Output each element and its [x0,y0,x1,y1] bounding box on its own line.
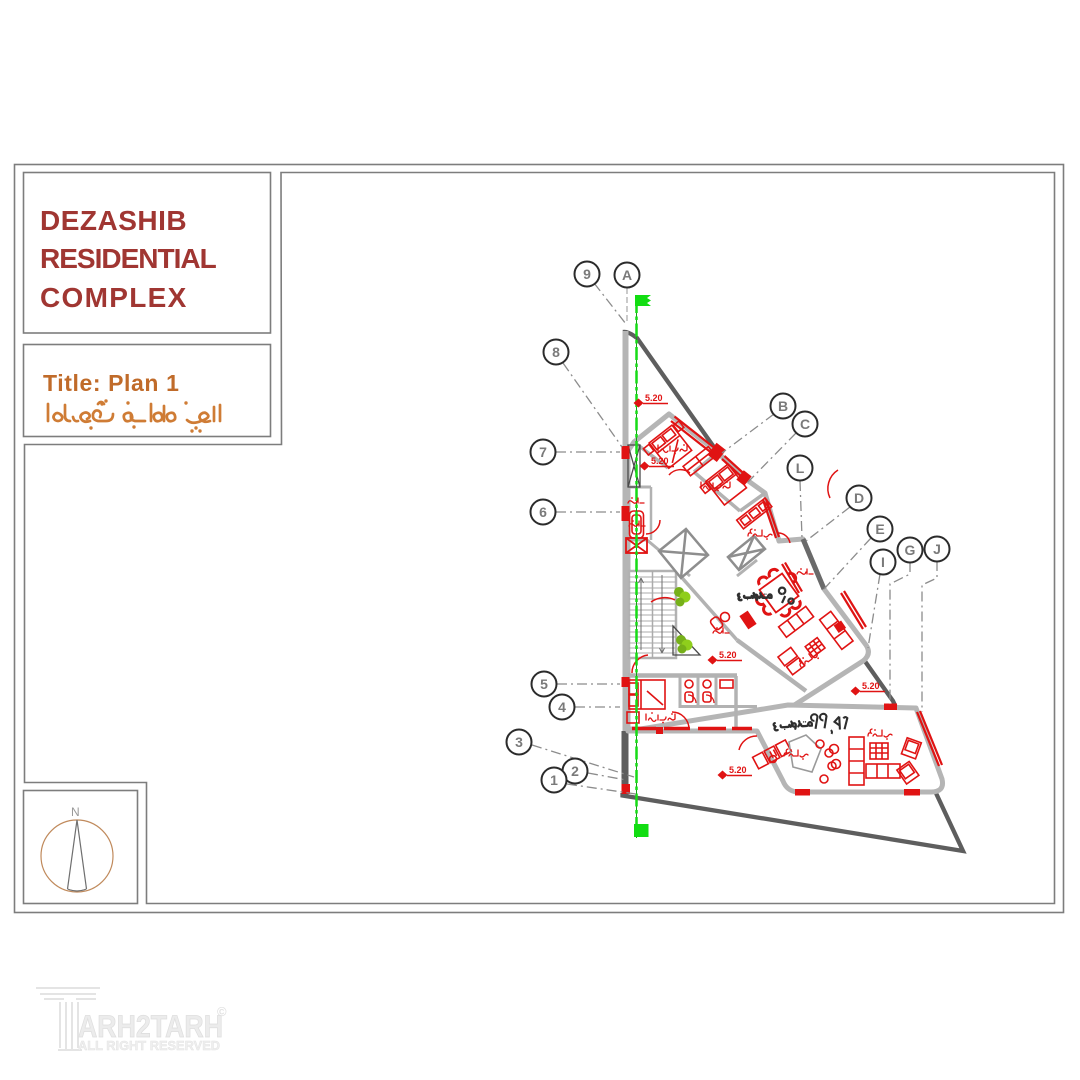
svg-text:G: G [905,542,916,558]
svg-text:ALL RIGHT RESERVED: ALL RIGHT RESERVED [78,1038,220,1053]
svg-text:L: L [796,460,805,476]
svg-text:RESIDENTIAL: RESIDENTIAL [40,243,217,274]
svg-text:3: 3 [515,734,523,750]
svg-text:C: C [800,416,810,432]
svg-text:Title: Plan 1: Title: Plan 1 [43,370,179,396]
svg-text:4: 4 [558,699,566,715]
svg-text:5: 5 [540,676,548,692]
svg-text:©: © [217,1004,227,1019]
svg-text:J: J [933,541,941,557]
svg-text:I: I [881,554,885,570]
svg-text:B: B [778,398,788,414]
svg-text:D: D [854,490,864,506]
svg-text:E: E [875,521,884,537]
svg-text:N: N [71,805,80,819]
svg-text:2: 2 [571,763,579,779]
svg-text:DEZASHIB: DEZASHIB [40,205,187,236]
svg-text:7: 7 [539,444,547,460]
svg-text:8: 8 [552,344,560,360]
svg-text:A: A [622,267,632,283]
svg-text:9: 9 [583,266,591,282]
svg-text:5.20: 5.20 [645,393,663,403]
svg-text:1: 1 [550,772,558,788]
svg-text:COMPLEX: COMPLEX [40,282,188,313]
svg-text:6: 6 [539,504,547,520]
